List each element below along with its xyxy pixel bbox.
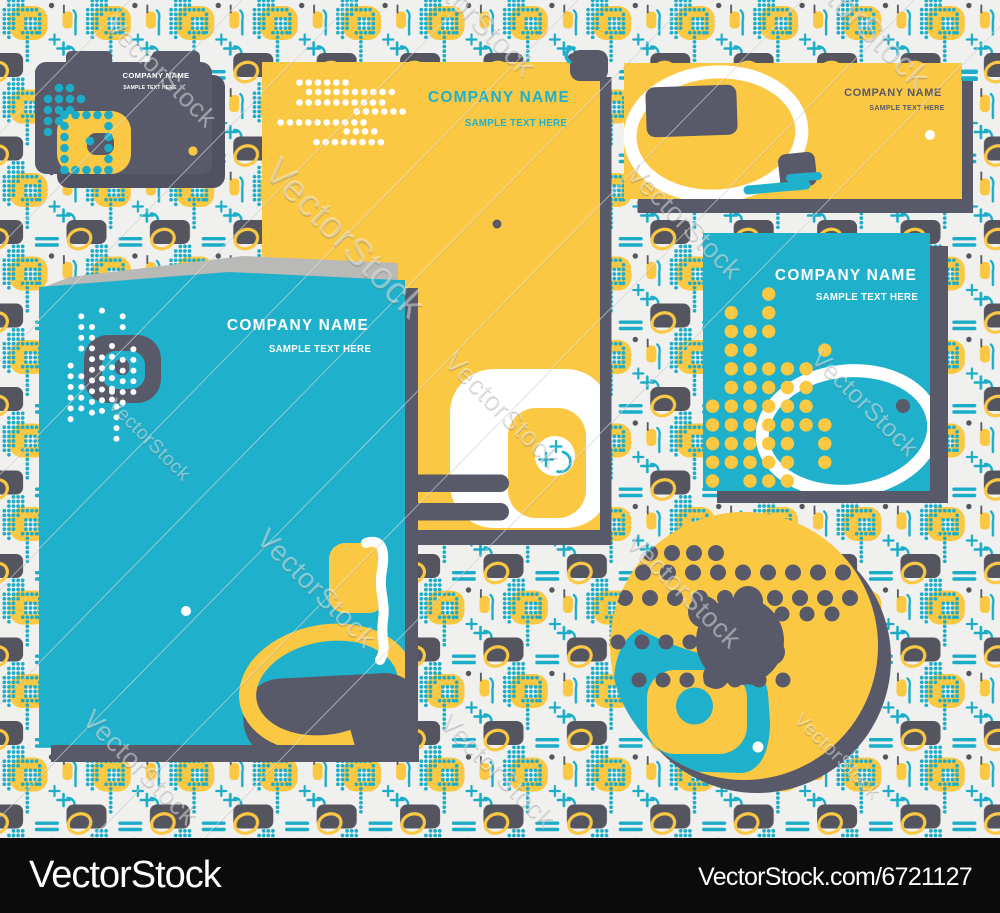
svg-text:SAMPLE TEXT HERE: SAMPLE TEXT HERE	[465, 118, 567, 129]
svg-text:COMPANY NAME: COMPANY NAME	[844, 87, 942, 99]
svg-text:VectorStock.com/6721127: VectorStock.com/6721127	[698, 863, 972, 891]
svg-text:SAMPLE TEXT HERE: SAMPLE TEXT HERE	[269, 344, 371, 355]
svg-text:COMPANY NAME: COMPANY NAME	[227, 317, 369, 334]
svg-text:SAMPLE TEXT HERE: SAMPLE TEXT HERE	[869, 105, 944, 112]
svg-text:COMPANY NAME: COMPANY NAME	[775, 267, 917, 284]
svg-text:SAMPLE TEXT HERE: SAMPLE TEXT HERE	[816, 292, 918, 303]
svg-text:COMPANY NAME: COMPANY NAME	[428, 89, 570, 106]
svg-text:VectorStock: VectorStock	[29, 854, 223, 896]
